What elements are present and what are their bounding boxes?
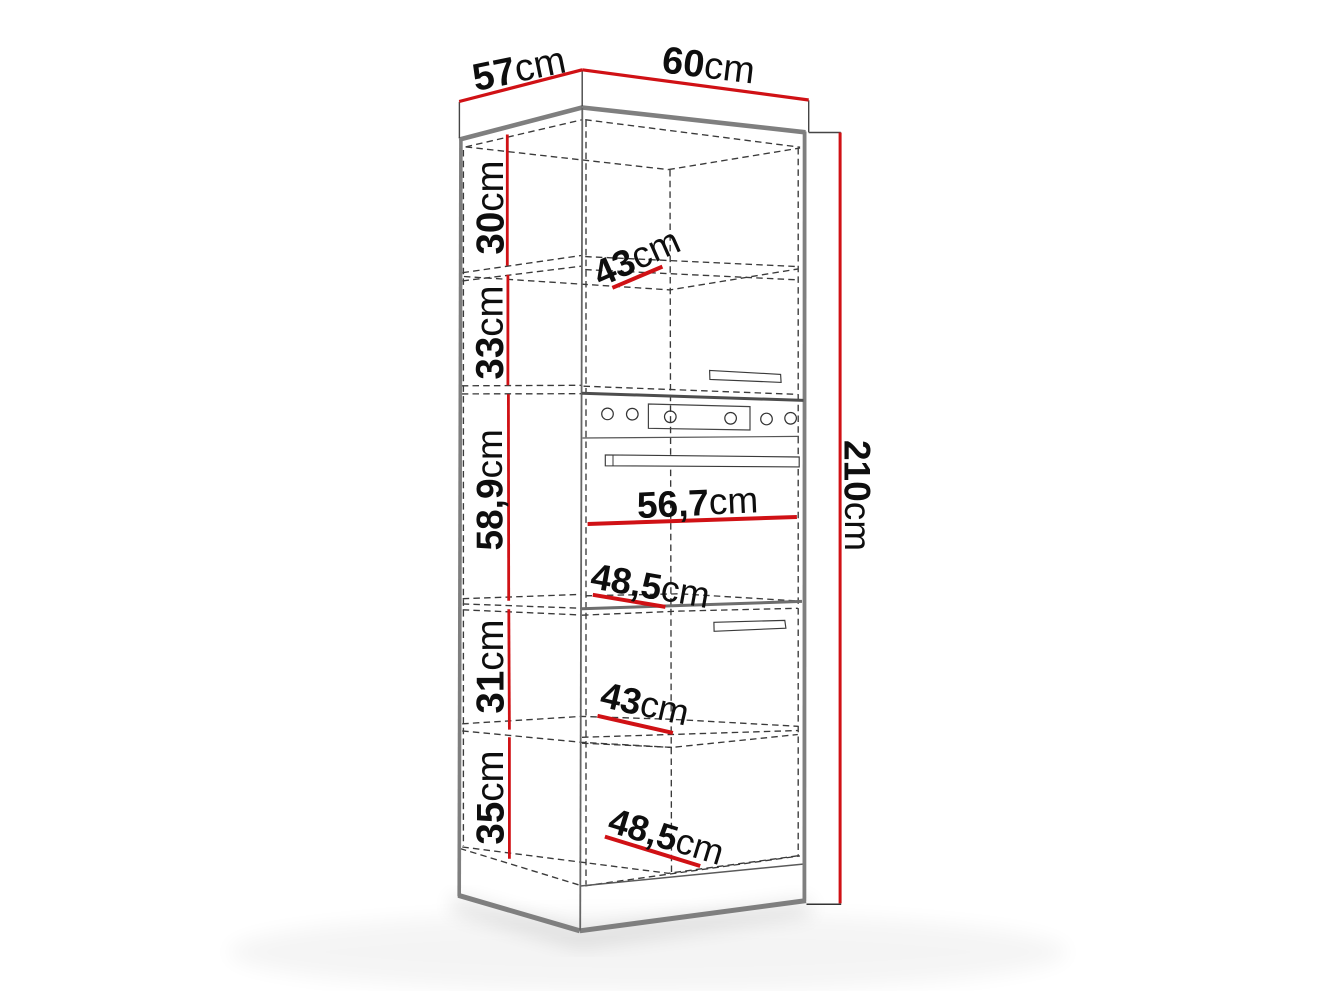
svg-text:56,7cm: 56,7cm xyxy=(636,479,759,525)
svg-text:31cm: 31cm xyxy=(469,619,512,713)
svg-text:35cm: 35cm xyxy=(469,750,512,844)
svg-text:33cm: 33cm xyxy=(468,285,511,379)
svg-text:210cm: 210cm xyxy=(837,440,878,551)
svg-text:30cm: 30cm xyxy=(469,160,512,254)
svg-text:58,9cm: 58,9cm xyxy=(469,429,510,550)
